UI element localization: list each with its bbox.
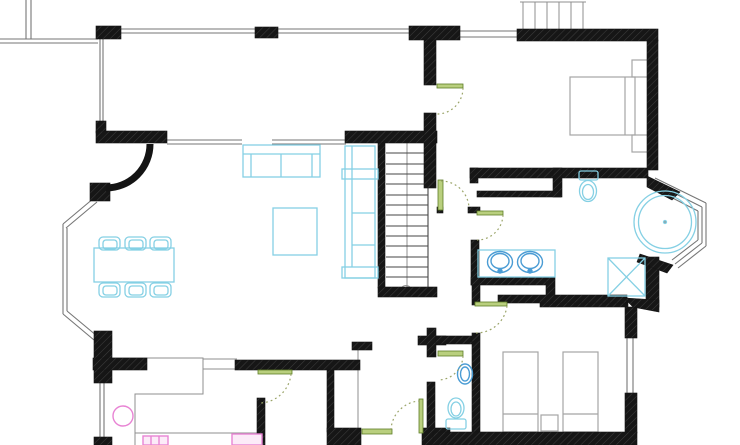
nightstand [541, 415, 558, 431]
wall-bedroom2-w [472, 333, 480, 432]
door-leaf-wc [438, 351, 463, 356]
column-bay-s [94, 331, 112, 383]
bed-single [503, 352, 538, 432]
door-swing [441, 181, 469, 208]
wall-closet-n [352, 342, 372, 350]
dining-table [94, 248, 174, 282]
nightstand [632, 135, 648, 152]
wall-hall-n [235, 360, 360, 370]
wall-bedroom2-e1 [625, 307, 637, 338]
door-leaf-bedroom1 [437, 84, 463, 88]
bathtub-drain [664, 221, 667, 224]
wall-closet-w [327, 370, 334, 432]
fixtures-blue [458, 252, 543, 385]
furniture-gray [503, 60, 648, 432]
wall-closet-s [327, 428, 361, 445]
curved-wall [106, 144, 150, 188]
wall-kitchen-n [93, 358, 147, 370]
wall-stairs-w [378, 143, 385, 288]
wall-n-bedroom [517, 29, 658, 41]
walls [90, 26, 680, 445]
chair-seat [129, 286, 143, 295]
door-leaf-bedroom2 [475, 302, 507, 306]
nightstand [632, 60, 648, 77]
bed-single [563, 352, 598, 432]
toilet-bowl-inner [451, 402, 461, 416]
bay-window-w [66, 202, 97, 228]
coffee-table [273, 208, 317, 255]
kitchen-sink [113, 406, 133, 426]
wall-hall-w [424, 113, 436, 188]
door-leaf-hall [438, 180, 443, 210]
wall-bath-s [471, 277, 553, 285]
wall-stairs-n [345, 131, 437, 143]
wall-arcs [106, 144, 150, 188]
chaise-armrest [342, 169, 378, 179]
door-swing [476, 306, 507, 333]
sink-basin [491, 254, 509, 269]
door-leaf-kitchen [258, 370, 292, 374]
wall-sw-stub [94, 437, 112, 445]
floor-plan-canvas [0, 0, 740, 445]
door-leaf-entry-a [362, 429, 392, 434]
column-wc [427, 328, 436, 357]
wall-bedroom1-w [424, 40, 436, 85]
wall-living-nw [96, 131, 167, 143]
toilet-bowl-inner [583, 185, 594, 200]
wall-s [433, 432, 637, 445]
bay-window-w [63, 198, 94, 224]
gray-lines [112, 2, 586, 445]
closet-back [477, 191, 561, 197]
vanity-counter [478, 250, 555, 277]
wall-bedroom1-e [647, 40, 658, 170]
column-nw [96, 26, 121, 39]
bay-window-e [672, 240, 698, 260]
chaise-sofa [345, 146, 375, 278]
bay-window-w [63, 314, 94, 340]
sink-basin [521, 254, 539, 269]
bay-window-e [675, 243, 702, 264]
wall-bedroom2-e2 [625, 393, 637, 433]
chaise-armrest [342, 267, 378, 278]
door-leaf-entry-b [419, 399, 423, 433]
stove [143, 436, 168, 445]
door-swing [477, 215, 503, 240]
sink-faucet [528, 269, 532, 273]
appliance [232, 434, 262, 445]
chair-seat [154, 286, 168, 295]
toilet-tank [446, 419, 466, 429]
bay-window-w [67, 311, 97, 336]
chair-seat [103, 286, 117, 295]
kitchen-counter [112, 358, 203, 445]
wc-sink-basin [461, 367, 470, 381]
column-n1 [255, 27, 278, 38]
wall-wc-w [427, 382, 435, 428]
door-leaf-bathroom [477, 211, 503, 215]
wall-n-mid [409, 26, 460, 40]
wall-wc-n [436, 336, 472, 344]
floor-plan-page [0, 0, 740, 445]
door-swing [437, 88, 463, 114]
sink-faucet [498, 269, 502, 273]
door-swing [391, 401, 421, 430]
bay-window-e [678, 246, 706, 268]
wall-stairs-s [378, 287, 437, 297]
